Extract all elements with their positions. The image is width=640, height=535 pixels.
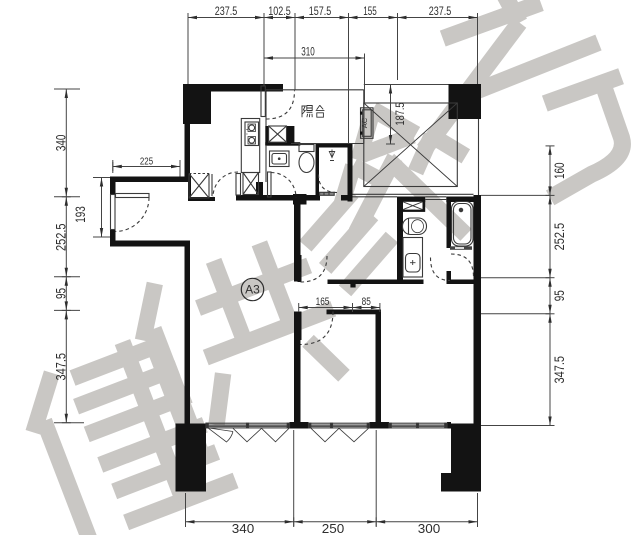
svg-text:237.5: 237.5 (215, 4, 238, 18)
svg-text:225: 225 (140, 156, 154, 167)
svg-text:193: 193 (72, 206, 88, 223)
svg-text:347.5: 347.5 (551, 356, 567, 384)
svg-text:300: 300 (418, 521, 441, 535)
svg-text:237.5: 237.5 (429, 4, 452, 18)
svg-text:85: 85 (362, 296, 371, 308)
svg-text:95: 95 (53, 288, 69, 299)
svg-text:157.5: 157.5 (309, 4, 332, 18)
svg-text:252.5: 252.5 (53, 223, 69, 251)
svg-text:252.5: 252.5 (551, 223, 567, 251)
svg-text:155: 155 (363, 4, 377, 18)
svg-text:160: 160 (551, 162, 567, 179)
svg-text:165: 165 (316, 296, 330, 308)
svg-text:340: 340 (232, 521, 255, 535)
svg-text:310: 310 (301, 45, 315, 59)
svg-text:95: 95 (551, 290, 567, 301)
svg-text:A3: A3 (245, 283, 260, 297)
svg-text:347.5: 347.5 (53, 353, 69, 381)
svg-text:102.5: 102.5 (268, 4, 291, 18)
svg-text:250: 250 (322, 521, 345, 535)
svg-text:340: 340 (53, 134, 69, 151)
svg-text:187.5: 187.5 (395, 103, 407, 126)
